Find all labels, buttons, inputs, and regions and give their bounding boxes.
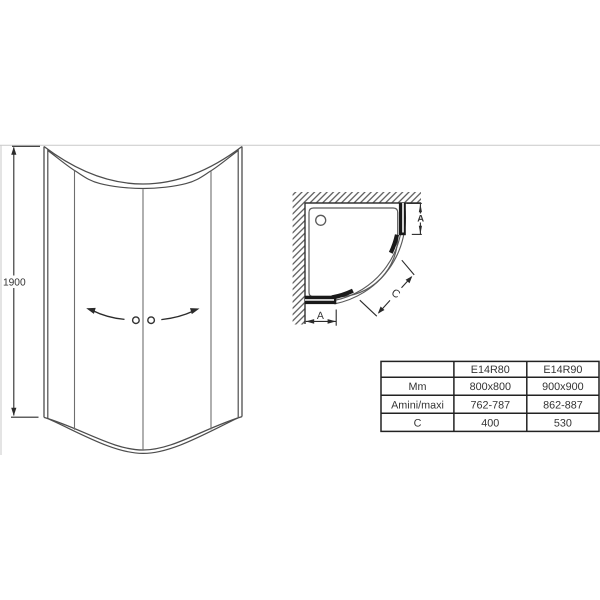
svg-text:E14R80: E14R80 bbox=[471, 364, 510, 376]
svg-text:530: 530 bbox=[554, 418, 572, 430]
svg-text:A: A bbox=[317, 310, 324, 322]
svg-text:862-887: 862-887 bbox=[543, 400, 583, 412]
svg-text:400: 400 bbox=[481, 418, 499, 430]
svg-text:Amini/maxi: Amini/maxi bbox=[391, 400, 444, 412]
svg-text:762-787: 762-787 bbox=[470, 400, 510, 412]
svg-text:C: C bbox=[414, 418, 422, 430]
svg-text:A: A bbox=[417, 214, 424, 225]
svg-text:800x800: 800x800 bbox=[470, 381, 511, 393]
svg-text:900x900: 900x900 bbox=[542, 381, 583, 393]
svg-text:E14R90: E14R90 bbox=[543, 364, 582, 376]
svg-text:1900: 1900 bbox=[3, 278, 26, 289]
svg-text:Mm: Mm bbox=[409, 381, 427, 393]
